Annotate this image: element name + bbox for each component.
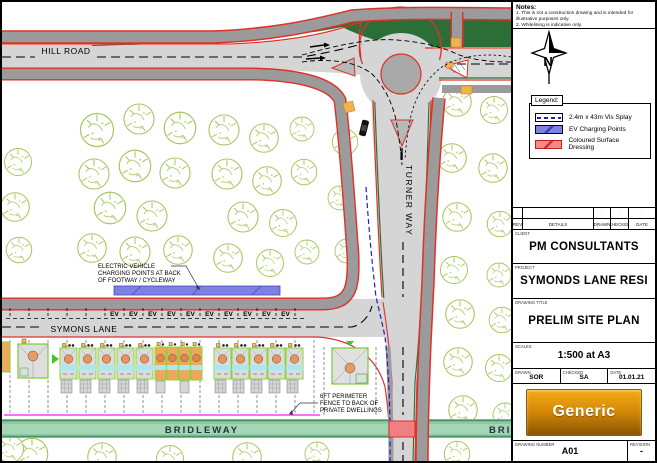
- house: [155, 343, 166, 381]
- svg-text:EV: EV: [262, 311, 271, 318]
- svg-text:FENCE TO BACK OF: FENCE TO BACK OF: [320, 401, 378, 407]
- bridleway: [2, 419, 511, 438]
- legend-heading: Legend:: [531, 95, 563, 106]
- client-name: PM CONSULTANTS: [515, 231, 653, 262]
- svg-text:EV: EV: [129, 311, 138, 318]
- scale-value: 1:500 at A3: [515, 344, 653, 367]
- drawing-title-box: DRAWING TITLE PRELIM SITE PLAN: [513, 299, 655, 343]
- surface-dressing-swatch: [535, 140, 562, 149]
- project-box: PROJECT SYMONDS LANE RESI: [513, 264, 655, 299]
- svg-text:EV: EV: [110, 311, 119, 318]
- svg-text:EV: EV: [243, 311, 252, 318]
- bridleway-label-east: BRIDLEWAY: [489, 425, 511, 436]
- surface-dressing-crossing: [389, 421, 415, 437]
- svg-text:EV: EV: [281, 311, 290, 318]
- drawing-title: PRELIM SITE PLAN: [515, 300, 653, 341]
- revision-table: - - - - REV DETAILS DRAWN CHECKED DATE: [513, 207, 655, 230]
- project-name: SYMONDS LANE RESI: [515, 265, 653, 297]
- hill-road-label: HILL ROAD: [41, 46, 90, 56]
- revision-cell: REVISION -: [628, 441, 655, 461]
- logo-box: Generic: [526, 389, 642, 436]
- logo-text: Generic: [552, 403, 615, 421]
- drawing-number-cell: DRAWING NUMBER A01: [513, 441, 628, 461]
- svg-text:N: N: [543, 54, 552, 69]
- legend: Legend: 2.4m x 43m Vis Splay EV Charging…: [513, 85, 655, 159]
- col-rev: REV: [513, 219, 523, 229]
- drawn-checked-date-row: DRAWN SOR CHECKED SA DATE 01.01.21: [513, 369, 655, 384]
- vis-splay-swatch: [535, 113, 563, 122]
- svg-text:CHARGING POINTS AT BACK: CHARGING POINTS AT BACK: [98, 271, 181, 277]
- checked-cell: CHECKED SA: [561, 369, 609, 383]
- drawing-number-row: DRAWING NUMBER A01 REVISION -: [513, 441, 655, 461]
- col-details: DETAILS: [523, 219, 594, 229]
- ev-charging-swatch: [535, 125, 563, 134]
- svg-text:6FT PERIMETER: 6FT PERIMETER: [320, 394, 368, 400]
- house: [332, 341, 368, 384]
- legend-item: EV Charging Points: [535, 125, 645, 134]
- roundabout-island: [381, 54, 421, 94]
- col-date: DATE: [629, 219, 655, 229]
- symons-lane-label: SYMONS LANE: [51, 324, 118, 334]
- revision-empty-row: - - - -: [513, 208, 655, 219]
- scales-box: SCALES 1:500 at A3: [513, 343, 655, 369]
- notes-heading: Notes:: [516, 4, 652, 11]
- title-block: Notes: 1. This is not a construction dra…: [511, 2, 655, 461]
- revision-header-row: REV DETAILS DRAWN CHECKED DATE: [513, 219, 655, 230]
- site-plan: EVEV EVEV EVEV EVEV EVEV: [2, 2, 511, 461]
- svg-text:OF FOOTWAY / CYCLEWAY: OF FOOTWAY / CYCLEWAY: [98, 278, 176, 284]
- svg-text:PRIVATE DWELLINGS: PRIVATE DWELLINGS: [320, 408, 382, 414]
- notes-section: Notes: 1. This is not a construction dra…: [513, 2, 655, 29]
- note-item: 1. This is not a construction drawing an…: [516, 11, 652, 23]
- legend-item: Coloured Surface Dressing: [535, 137, 645, 151]
- date-cell: DATE 01.01.21: [608, 369, 655, 383]
- north-arrow-section: N: [513, 29, 655, 85]
- col-checked: CHECKED: [611, 219, 629, 229]
- svg-text:EV: EV: [224, 311, 233, 318]
- house: [18, 339, 48, 378]
- company-logo: Generic: [513, 384, 655, 441]
- bridleway-label: BRIDLEWAY: [165, 425, 239, 436]
- svg-text:EV: EV: [186, 311, 195, 318]
- svg-text:EV: EV: [148, 311, 157, 318]
- legend-item: 2.4m x 43m Vis Splay: [535, 113, 645, 122]
- svg-text:EV: EV: [205, 311, 214, 318]
- client-box: CLIENT PM CONSULTANTS: [513, 230, 655, 264]
- drawing-sheet: EVEV EVEV EVEV EVEV EVEV: [0, 0, 657, 463]
- drawn-cell: DRAWN SOR: [513, 369, 561, 383]
- turner-way-label: TURNER WAY: [404, 165, 414, 236]
- svg-text:ELECTRIC VEHICLE: ELECTRIC VEHICLE: [98, 264, 155, 270]
- col-drawn: DRAWN: [594, 219, 611, 229]
- svg-text:EV: EV: [167, 311, 176, 318]
- north-arrow-icon: N: [523, 29, 575, 85]
